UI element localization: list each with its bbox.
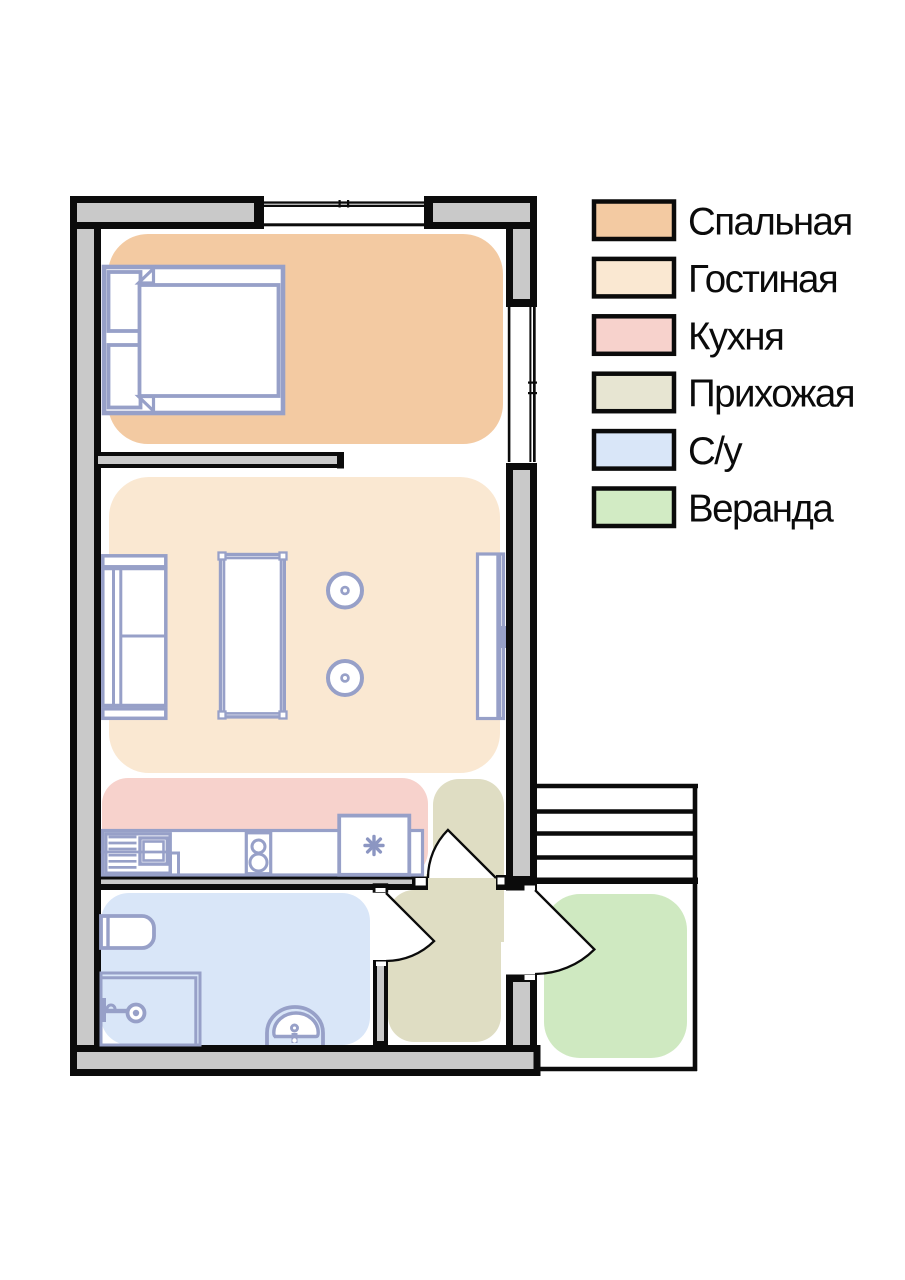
- svg-text:С/у: С/у: [688, 430, 743, 473]
- svg-text:Спальная: Спальная: [688, 201, 852, 244]
- svg-text:Веранда: Веранда: [688, 488, 834, 531]
- svg-text:Кухня: Кухня: [688, 315, 783, 358]
- svg-text:Прихожая: Прихожая: [688, 373, 854, 416]
- svg-text:Гостиная: Гостиная: [688, 258, 837, 301]
